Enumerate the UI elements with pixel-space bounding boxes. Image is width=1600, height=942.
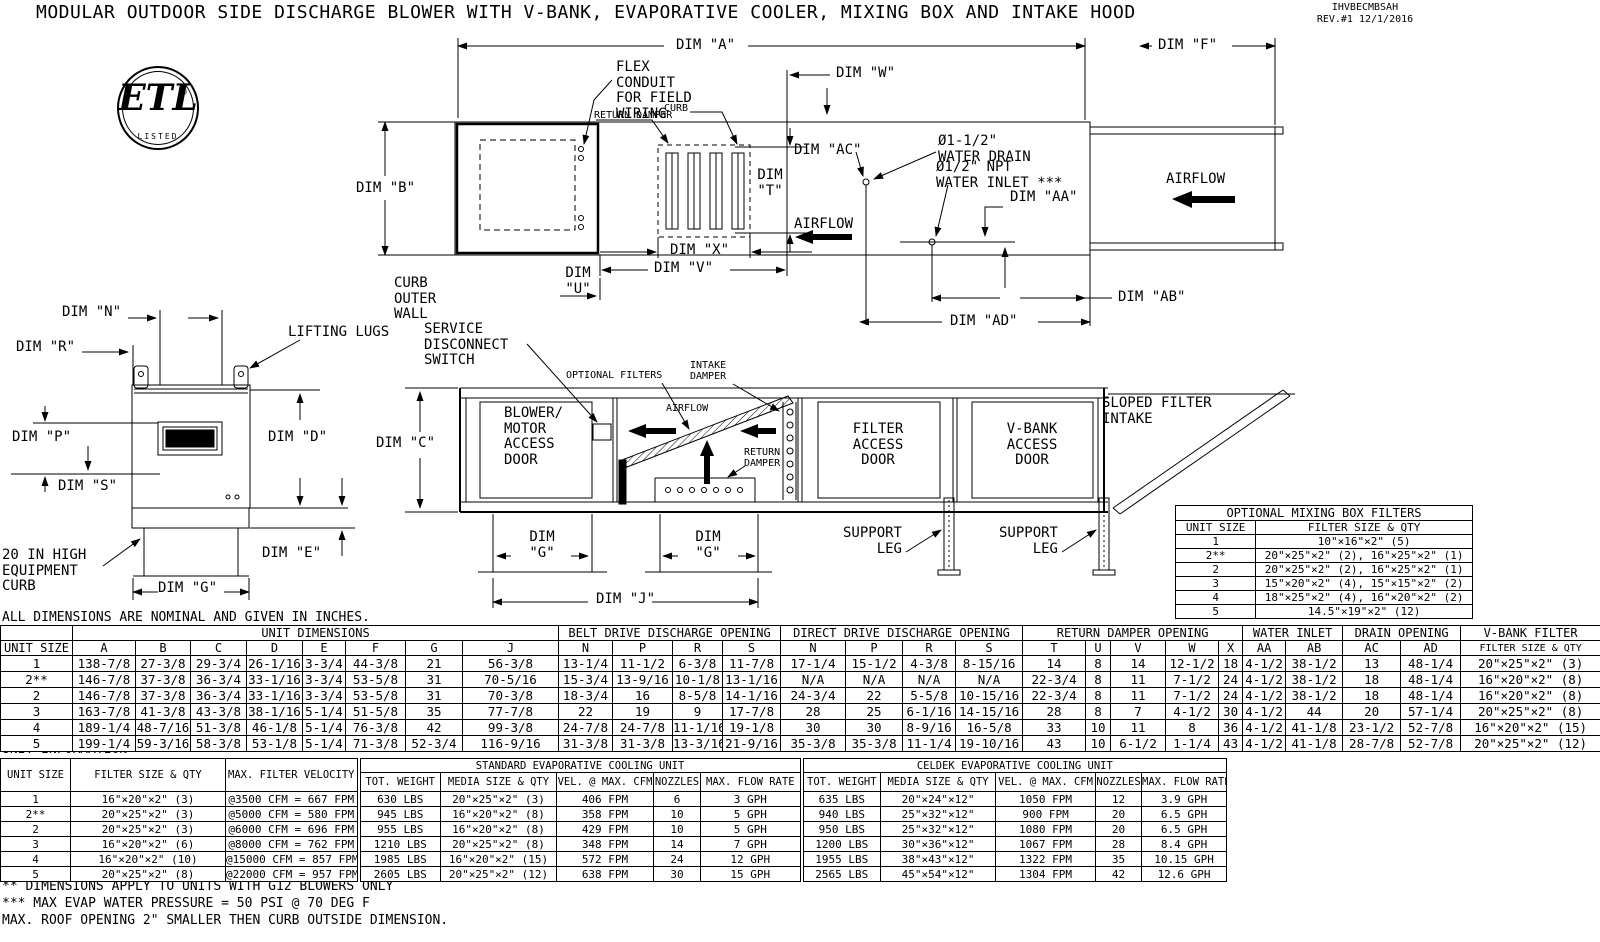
table-cell: 44 (1286, 704, 1343, 720)
table-row: 4189-1/448-7/1651-3/846-1/85-1/476-3/842… (1, 720, 1600, 736)
column-header: FILTER SIZE & QTY (1461, 641, 1600, 656)
table-cell: 13-9/16 (613, 672, 673, 688)
table: UNIT DIMENSIONSBELT DRIVE DISCHARGE OPEN… (0, 625, 1600, 752)
table-cell: 20"×25"×2" (3) (441, 792, 557, 807)
table-cell: 30 (781, 720, 846, 736)
table-cell: 8 (1086, 656, 1111, 672)
table-cell: 116-9/16 (463, 736, 559, 752)
table-cell: 635 LBS (802, 792, 881, 807)
table-cell: 945 LBS (359, 807, 441, 822)
listed-text: LISTED (117, 132, 199, 141)
table-cell: 4-1/2 (1166, 704, 1219, 720)
table-cell: 17-7/8 (723, 704, 781, 720)
column-header: RETURN DAMPER OPENING (1023, 626, 1243, 641)
table-cell: 30 (846, 720, 903, 736)
table-cell: 43 (1219, 736, 1243, 752)
table-cell: 358 FPM (557, 807, 654, 822)
water-inlet-label: Ø1/2" NPT WATER INLET *** (936, 160, 1062, 191)
dim-ab-label: DIM "AB" (1118, 290, 1185, 306)
column-header: CELDEK EVAPORATIVE COOLING UNIT (802, 759, 1227, 773)
table-cell: 1210 LBS (359, 837, 441, 852)
table-cell: N/A (781, 672, 846, 688)
table-cell: 21-9/16 (723, 736, 781, 752)
table-cell: 22-3/4 (1023, 672, 1086, 688)
table-cell: 11-1/16 (673, 720, 723, 736)
column-header: UNIT SIZE (1, 641, 73, 656)
table-cell: 10 (1086, 720, 1111, 736)
table-cell: 48-7/16 (136, 720, 191, 736)
table-cell: 20"×25"×2" (8) (1461, 704, 1600, 720)
column-header: MAX. FILTER VELOCITY (226, 759, 359, 792)
table-row: 2**20"×25"×2" (2), 16"×25"×2" (1) (1176, 549, 1473, 563)
table-cell: 20"×25"×2" (12) (441, 867, 557, 882)
table-row: 5199-1/459-3/1658-3/853-1/85-1/471-3/852… (1, 736, 1600, 752)
column-header: B (136, 641, 191, 656)
table-cell: 24-7/8 (559, 720, 613, 736)
table-cell: 4-1/2 (1243, 672, 1286, 688)
table-row: 418"×25"×2" (4), 16"×20"×2" (2) (1176, 591, 1473, 605)
table-cell: 5 GPH (701, 807, 802, 822)
column-header: N (781, 641, 846, 656)
table-cell: 16"×20"×2" (3) (71, 792, 226, 807)
table-cell: 20 (1343, 704, 1401, 720)
dim-r-label: DIM "R" (16, 340, 75, 356)
dim-p-label: DIM "P" (12, 430, 71, 446)
table-cell: 17-1/4 (781, 656, 846, 672)
table-cell: 29-3/4 (191, 656, 247, 672)
table-cell: 3 (1176, 577, 1256, 591)
table-cell: 99-3/8 (463, 720, 559, 736)
column-header: P (613, 641, 673, 656)
table-cell: 71-3/8 (346, 736, 406, 752)
table-cell: 7 GPH (701, 837, 802, 852)
table-cell: 138-7/8 (73, 656, 136, 672)
sloped-filter-intake-label: SLOPED FILTER INTAKE (1102, 396, 1212, 427)
equipment-curb-label: 20 IN HIGH EQUIPMENT CURB (2, 548, 86, 595)
column-header: MAX. FLOW RATE (701, 773, 802, 792)
table-cell: 24 (654, 852, 701, 867)
table-cell: 16"×20"×2" (6) (71, 837, 226, 852)
column-header: UNIT SIZE (1176, 521, 1256, 535)
table-cell: 20"×24"×12" (881, 792, 996, 807)
table-cell: 38"×43"×12" (881, 852, 996, 867)
return-damper-side-label: RETURN DAMPER (744, 447, 780, 469)
table: UNIT SIZEFILTER SIZE & QTYMAX. FILTER VE… (0, 758, 1227, 882)
dim-v-label: DIM "V" (654, 261, 713, 277)
table-cell: @8000 CFM = 762 FPM (226, 837, 359, 852)
table-cell: 4-3/8 (903, 656, 956, 672)
column-header: W (1166, 641, 1219, 656)
table-row: 110"×16"×2" (5) (1176, 535, 1473, 549)
table-cell: 26-1/16 (247, 656, 303, 672)
dim-ac-label: DIM "AC" (794, 143, 861, 159)
table-cell: 3-3/4 (303, 672, 346, 688)
table-cell: 19 (613, 704, 673, 720)
table-cell: 15 GPH (701, 867, 802, 882)
registered-mark: ® (182, 88, 187, 98)
table-cell: 53-5/8 (346, 688, 406, 704)
table-cell: 11 (1111, 672, 1166, 688)
column-header: OPTIONAL MIXING BOX FILTERS (1176, 506, 1473, 521)
return-damper-plan-label: RETURN DAMPER (594, 110, 672, 121)
dim-x-label: DIM "X" (670, 243, 729, 259)
table-cell: 6.5 GPH (1142, 822, 1227, 837)
column-header: NOZZLES (654, 773, 701, 792)
table-cell: 38-1/16 (247, 704, 303, 720)
table-cell: 4 (1, 720, 73, 736)
table-cell: 1322 FPM (996, 852, 1096, 867)
drawing-title: MODULAR OUTDOOR SIDE DISCHARGE BLOWER WI… (36, 2, 1136, 23)
table-cell: 48-1/4 (1401, 672, 1461, 688)
table-cell: 42 (1096, 867, 1142, 882)
table-cell: 41-3/8 (136, 704, 191, 720)
table-row: 1138-7/827-3/829-3/426-1/163-3/444-3/821… (1, 656, 1600, 672)
table-cell: 31-3/8 (613, 736, 673, 752)
table-cell: 8 (1086, 704, 1111, 720)
table-cell: 43-3/8 (191, 704, 247, 720)
table-row: 416"×20"×2" (10)@15000 CFM = 857 FPM1985… (1, 852, 1227, 867)
table-cell: 5-1/4 (303, 736, 346, 752)
revision-block: IHVBECMBSAH REV.#1 12/1/2016 (1300, 2, 1430, 26)
table-cell: 1 (1, 656, 73, 672)
table-cell: 35 (1096, 852, 1142, 867)
table-cell: 2** (1, 672, 73, 688)
column-header: G (406, 641, 463, 656)
table-cell: 70-3/8 (463, 688, 559, 704)
table-row: 315"×20"×2" (4), 15"×15"×2" (2) (1176, 577, 1473, 591)
table-cell: 28 (781, 704, 846, 720)
table-cell: 8 (1086, 672, 1111, 688)
table-cell: 16-5/8 (956, 720, 1023, 736)
dim-d-label: DIM "D" (268, 430, 327, 446)
table-cell: 189-1/4 (73, 720, 136, 736)
table-cell: 35-3/8 (846, 736, 903, 752)
table-cell: 41-1/8 (1286, 720, 1343, 736)
table-cell: 33 (1023, 720, 1086, 736)
column-header: BELT DRIVE DISCHARGE OPENING (559, 626, 781, 641)
table-cell: 37-3/8 (136, 672, 191, 688)
column-header: UNIT SIZE (1, 759, 71, 792)
table-cell: 6-1/16 (903, 704, 956, 720)
table-cell: 1-1/4 (1166, 736, 1219, 752)
table-cell: 6-3/8 (673, 656, 723, 672)
table-cell: 25"×32"×12" (881, 807, 996, 822)
table-cell: 24-3/4 (781, 688, 846, 704)
table-cell: 18 (1343, 688, 1401, 704)
table-cell: 6.5 GPH (1142, 807, 1227, 822)
table-cell: 15-1/2 (846, 656, 903, 672)
table-cell: 28 (1096, 837, 1142, 852)
column-header: C (191, 641, 247, 656)
table-cell: 9 (673, 704, 723, 720)
dim-b-label: DIM "B" (356, 181, 415, 197)
table-cell: 16"×20"×2" (8) (1461, 688, 1600, 704)
table-cell: 16"×20"×2" (15) (1461, 720, 1600, 736)
column-header: P (846, 641, 903, 656)
column-header: WATER INLET (1243, 626, 1343, 641)
table-cell: 5-1/4 (303, 720, 346, 736)
table-cell: 43 (1023, 736, 1086, 752)
table-cell: 4 (1, 852, 71, 867)
table-cell: 18 (1219, 656, 1243, 672)
table-cell: 31 (406, 672, 463, 688)
column-header: VEL. @ MAX. CFM (996, 773, 1096, 792)
table-cell: 12 (1096, 792, 1142, 807)
table-cell: 42 (406, 720, 463, 736)
dim-c-label: DIM "C" (376, 436, 435, 452)
table-cell: 5 GPH (701, 822, 802, 837)
table-cell: 21 (406, 656, 463, 672)
column-header: J (463, 641, 559, 656)
table-cell: 20"×25"×2" (8) (71, 867, 226, 882)
table-row: 3163-7/841-3/843-3/838-1/165-1/451-5/835… (1, 704, 1600, 720)
drawing-sheet: { "colors": {"ink": "#000000", "paper": … (0, 0, 1600, 942)
airflow-side-label: AIRFLOW (666, 403, 708, 414)
table-cell: 23-1/2 (1343, 720, 1401, 736)
plan-view (378, 38, 1283, 326)
table-cell: 20 (1096, 807, 1142, 822)
table-cell: 4-1/2 (1243, 656, 1286, 672)
column-header: F (346, 641, 406, 656)
table-cell: 20"×25"×2" (2), 16"×25"×2" (1) (1256, 563, 1473, 577)
table-cell: 5-5/8 (903, 688, 956, 704)
dim-aa-label: DIM "AA" (1010, 190, 1077, 206)
column-header: FILTER SIZE & QTY (1256, 521, 1473, 535)
table-cell: 2 (1, 822, 71, 837)
table-cell: 27-3/8 (136, 656, 191, 672)
table-cell: 429 FPM (557, 822, 654, 837)
vbank-access-door-label: V-BANK ACCESS DOOR (1000, 422, 1064, 469)
table-cell: 8 (1166, 720, 1219, 736)
table-cell: 5 (1, 867, 71, 882)
table-cell: 1080 FPM (996, 822, 1096, 837)
table-row: 2**146-7/837-3/836-3/433-1/163-3/453-5/8… (1, 672, 1600, 688)
table-cell: 77-7/8 (463, 704, 559, 720)
revision-date: REV.#1 12/1/2016 (1300, 14, 1430, 26)
table-cell: 20"×25"×2" (12) (1461, 736, 1600, 752)
table-cell: 13-3/16 (673, 736, 723, 752)
table-cell: 2605 LBS (359, 867, 441, 882)
table-cell: 10 (1086, 736, 1111, 752)
table-cell: 955 LBS (359, 822, 441, 837)
column-header (1, 626, 73, 641)
column-header: N (559, 641, 613, 656)
table-cell: 20"×25"×2" (3) (1461, 656, 1600, 672)
optional-mixing-box-filters-table: OPTIONAL MIXING BOX FILTERSUNIT SIZEFILT… (1175, 505, 1473, 619)
table-cell: 13 (1343, 656, 1401, 672)
table-cell: 1050 FPM (996, 792, 1096, 807)
table-cell: 16"×20"×2" (8) (441, 822, 557, 837)
column-header: S (956, 641, 1023, 656)
table-cell: 22 (559, 704, 613, 720)
table-cell: 4-1/2 (1243, 736, 1286, 752)
table-cell: 3.9 GPH (1142, 792, 1227, 807)
table-cell: 5 (1, 736, 73, 752)
table-cell: 16"×20"×2" (8) (441, 807, 557, 822)
table-cell: 52-7/8 (1401, 736, 1461, 752)
filter-access-door-label: FILTER ACCESS DOOR (846, 422, 910, 469)
table-cell: 11 (1111, 720, 1166, 736)
table-cell: 59-3/16 (136, 736, 191, 752)
table-cell: 46-1/8 (247, 720, 303, 736)
table-cell: 146-7/8 (73, 688, 136, 704)
service-disconnect-label: SERVICE DISCONNECT SWITCH (424, 322, 508, 369)
table-cell: 4-1/2 (1243, 720, 1286, 736)
table-cell: 11-1/4 (903, 736, 956, 752)
table-cell: 4-1/2 (1243, 704, 1286, 720)
table-cell: 38-1/2 (1286, 656, 1343, 672)
table-cell: 28-7/8 (1343, 736, 1401, 752)
table-cell: 41-1/8 (1286, 736, 1343, 752)
table-cell: 13-1/16 (723, 672, 781, 688)
table-row: 220"×25"×2" (2), 16"×25"×2" (1) (1176, 563, 1473, 577)
table-cell: @22000 CFM = 957 FPM (226, 867, 359, 882)
table-cell: 70-5/16 (463, 672, 559, 688)
table-cell: 22-3/4 (1023, 688, 1086, 704)
table-cell: 20"×25"×2" (8) (441, 837, 557, 852)
column-header: T (1023, 641, 1086, 656)
dim-s-label: DIM "S" (58, 479, 117, 495)
table-cell: 2** (1, 807, 71, 822)
column-header: STANDARD EVAPORATIVE COOLING UNIT (359, 759, 802, 773)
column-header: X (1219, 641, 1243, 656)
table-cell: 16"×20"×2" (10) (71, 852, 226, 867)
column-header: NOZZLES (1096, 773, 1142, 792)
curb-label: CURB (664, 103, 688, 114)
table-cell: 940 LBS (802, 807, 881, 822)
table-cell: 15-3/4 (559, 672, 613, 688)
dim-ad-label: DIM "AD" (950, 314, 1017, 330)
table-cell: 10 (654, 822, 701, 837)
dim-n-label: DIM "N" (62, 305, 121, 321)
table-cell: 5-1/4 (303, 704, 346, 720)
column-header: DRAIN OPENING (1343, 626, 1461, 641)
table-cell: 630 LBS (359, 792, 441, 807)
column-header: MEDIA SIZE & QTY (441, 773, 557, 792)
table-cell: 33-1/16 (247, 672, 303, 688)
table-cell: 19-10/16 (956, 736, 1023, 752)
table-cell: 10.15 GPH (1142, 852, 1227, 867)
table-cell: 12.6 GPH (1142, 867, 1227, 882)
table-row: 316"×20"×2" (6)@8000 CFM = 762 FPM1210 L… (1, 837, 1227, 852)
support-leg-1-label: SUPPORT LEG (840, 526, 902, 557)
table-cell: 45"×54"×12" (881, 867, 996, 882)
table-cell: 1955 LBS (802, 852, 881, 867)
column-header: S (723, 641, 781, 656)
table-cell: @6000 CFM = 696 FPM (226, 822, 359, 837)
table-cell: 18-3/4 (559, 688, 613, 704)
table-cell: 7-1/2 (1166, 672, 1219, 688)
table-cell: 12 GPH (701, 852, 802, 867)
support-leg-2-label: SUPPORT LEG (996, 526, 1058, 557)
table-cell: 35 (406, 704, 463, 720)
table-cell: 20"×25"×2" (2), 16"×25"×2" (1) (1256, 549, 1473, 563)
table-cell: 28 (1023, 704, 1086, 720)
column-header: VEL. @ MAX. CFM (557, 773, 654, 792)
table-cell: 572 FPM (557, 852, 654, 867)
table-cell: 950 LBS (802, 822, 881, 837)
table-cell: 1304 FPM (996, 867, 1096, 882)
column-header: TOT. WEIGHT (359, 773, 441, 792)
table-cell: 48-1/4 (1401, 688, 1461, 704)
table-row: 520"×25"×2" (8)@22000 CFM = 957 FPM2605 … (1, 867, 1227, 882)
column-header: AB (1286, 641, 1343, 656)
dimensions-note: ALL DIMENSIONS ARE NOMINAL AND GIVEN IN … (2, 610, 370, 625)
table-cell: 10 (654, 807, 701, 822)
table-row: 116"×20"×2" (3)@3500 CFM = 667 FPM630 LB… (1, 792, 1227, 807)
table-cell: 8-9/16 (903, 720, 956, 736)
dim-t-label: DIM "T" (748, 168, 792, 199)
table-cell: 52-7/8 (1401, 720, 1461, 736)
table-cell: 3-3/4 (303, 656, 346, 672)
table-cell: 18 (1343, 672, 1401, 688)
column-header: V (1111, 641, 1166, 656)
table-cell: 13-1/4 (559, 656, 613, 672)
column-header: R (903, 641, 956, 656)
column-header: AC (1343, 641, 1401, 656)
table-cell: 25"×32"×12" (881, 822, 996, 837)
unit-information-table: UNIT SIZEFILTER SIZE & QTYMAX. FILTER VE… (0, 758, 1226, 882)
blower-motor-door-label: BLOWER/ MOTOR ACCESS DOOR (504, 406, 563, 469)
table-cell: 14-15/16 (956, 704, 1023, 720)
column-header: D (247, 641, 303, 656)
table-cell: 3-3/4 (303, 688, 346, 704)
table-cell: N/A (956, 672, 1023, 688)
table-cell: 30"×36"×12" (881, 837, 996, 852)
table-cell: 58-3/8 (191, 736, 247, 752)
table-cell: 8 (1086, 688, 1111, 704)
table-cell: 10-1/8 (673, 672, 723, 688)
table-cell: 16 (613, 688, 673, 704)
table-cell: 7 (1111, 704, 1166, 720)
table-cell: 51-5/8 (346, 704, 406, 720)
footnote-3: MAX. ROOF OPENING 2" SMALLER THEN CURB O… (2, 913, 448, 928)
table-cell: 146-7/8 (73, 672, 136, 688)
table-cell: 16"×20"×2" (8) (1461, 672, 1600, 688)
dim-f-label: DIM "F" (1158, 38, 1217, 54)
table-cell: 348 FPM (557, 837, 654, 852)
table-cell: 6 (654, 792, 701, 807)
column-header: U (1086, 641, 1111, 656)
table-cell: 36 (1219, 720, 1243, 736)
table-cell: 14 (1023, 656, 1086, 672)
dim-w-label: DIM "W" (836, 66, 895, 82)
table-cell: 53-1/8 (247, 736, 303, 752)
table-cell: 25 (846, 704, 903, 720)
table-cell: @3500 CFM = 667 FPM (226, 792, 359, 807)
table-cell: 31-3/8 (559, 736, 613, 752)
curb-outer-wall-label: CURB OUTER WALL (394, 276, 436, 323)
table-cell: 38-1/2 (1286, 688, 1343, 704)
table-cell: 19-1/8 (723, 720, 781, 736)
column-header: E (303, 641, 346, 656)
column-header: UNIT DIMENSIONS (73, 626, 559, 641)
column-header: TOT. WEIGHT (802, 773, 881, 792)
table-cell: 3 GPH (701, 792, 802, 807)
column-header: AA (1243, 641, 1286, 656)
table-cell: 1985 LBS (359, 852, 441, 867)
table-cell: 51-3/8 (191, 720, 247, 736)
table-cell: 30 (654, 867, 701, 882)
table-cell: 16"×20"×2" (15) (441, 852, 557, 867)
table-cell: 8-15/16 (956, 656, 1023, 672)
table-cell: 24-7/8 (613, 720, 673, 736)
doc-code: IHVBECMBSAH (1300, 2, 1430, 14)
airflow-plan-right-label: AIRFLOW (1166, 172, 1225, 188)
table-cell: 4-1/2 (1243, 688, 1286, 704)
table-cell: 18"×25"×2" (4), 16"×20"×2" (2) (1256, 591, 1473, 605)
table-cell: 1200 LBS (802, 837, 881, 852)
